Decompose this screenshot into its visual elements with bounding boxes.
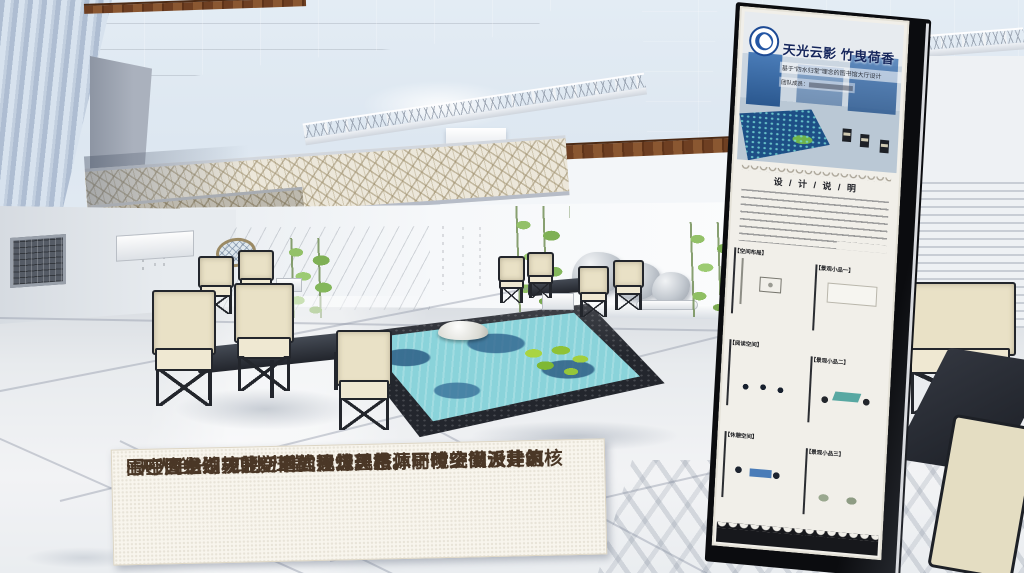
photo-chair bbox=[842, 128, 852, 142]
poster-panel-grid: 【空间布局】 【景观小品一】 【阅读空间】 【景观小品二】 【休憩空间】 【景观… bbox=[720, 246, 890, 531]
panel-label: 【景观小品一】 bbox=[815, 263, 854, 274]
panel-image-rest-space bbox=[721, 431, 726, 497]
panel-image-landscape-3 bbox=[802, 448, 807, 514]
chair-legs bbox=[529, 283, 553, 298]
chair-back bbox=[152, 290, 216, 355]
photo-chair bbox=[880, 140, 890, 154]
chair bbox=[613, 260, 644, 310]
panel-label: 【阅读空间】 bbox=[729, 338, 762, 349]
chair bbox=[578, 266, 609, 317]
chair-back bbox=[336, 330, 392, 386]
poster-panel: 【空间布局】 bbox=[734, 246, 808, 252]
vent-grille bbox=[10, 234, 66, 288]
panel-image-landscape-2 bbox=[807, 356, 812, 422]
chair bbox=[152, 290, 216, 406]
description-caption-card: 图书馆天井空间的设计理念源于传统徽派建筑 “天人合一，四水归堂”思想。整体环境空… bbox=[111, 438, 608, 565]
poster-panel: 【景观小品一】 bbox=[816, 263, 890, 269]
chair-back bbox=[238, 250, 274, 281]
panel-image-landscape-1 bbox=[812, 264, 817, 330]
chair-legs bbox=[615, 294, 642, 310]
panel-label: 【空间布局】 bbox=[734, 246, 767, 257]
photo-pool bbox=[737, 103, 832, 167]
chair-seat bbox=[339, 380, 389, 400]
panel-label: 【景观小品二】 bbox=[810, 355, 849, 366]
team-names-blur bbox=[808, 82, 852, 91]
chair-legs bbox=[339, 398, 388, 430]
chair-back bbox=[613, 260, 644, 288]
chair-back bbox=[904, 282, 1016, 356]
chair bbox=[498, 256, 525, 303]
caption-line: 心空间组织功能，增强视觉美感。 bbox=[126, 451, 412, 483]
chair bbox=[234, 283, 294, 391]
chair-legs bbox=[500, 288, 524, 303]
poster-panel: 【景观小品二】 bbox=[811, 355, 885, 361]
poster-panel: 【阅读空间】 bbox=[730, 338, 804, 344]
chair-back bbox=[234, 283, 294, 343]
wall-calligraphy-2 bbox=[430, 226, 490, 298]
chair-seat bbox=[155, 348, 213, 371]
3d-courtyard-viewport[interactable]: 天光云影 竹曳荷香 基于“四水归堂”理念的图书馆大厅设计 团队成员： 设 / 计… bbox=[0, 0, 1024, 573]
chair-back bbox=[578, 266, 609, 295]
chair-legs bbox=[238, 356, 291, 391]
pool-sculpture bbox=[438, 321, 488, 340]
chair-legs bbox=[156, 369, 212, 406]
chair-legs bbox=[580, 301, 607, 317]
chair bbox=[336, 330, 392, 430]
planter-bench bbox=[116, 230, 194, 261]
design-notes-paragraph bbox=[739, 189, 889, 254]
chair-seat bbox=[237, 337, 291, 359]
panel-label: 【景观小品三】 bbox=[806, 447, 845, 458]
panel-label: 【休憩空间】 bbox=[724, 430, 757, 441]
design-poster-board[interactable]: 天光云影 竹曳荷香 基于“四水归堂”理念的图书馆大厅设计 团队成员： 设 / 计… bbox=[712, 6, 910, 560]
poster-hero-photo: 天光云影 竹曳荷香 基于“四水归堂”理念的图书馆大厅设计 团队成员： bbox=[737, 11, 904, 173]
panel-image-reading-space bbox=[726, 339, 731, 405]
poster-panel: 【景观小品三】 bbox=[806, 447, 880, 453]
water-plants bbox=[518, 342, 596, 380]
team-label: 团队成员： bbox=[781, 80, 809, 88]
poster-panel: 【休憩空间】 bbox=[725, 430, 799, 436]
chair-back bbox=[527, 252, 554, 278]
chair-back bbox=[498, 256, 525, 282]
panel-image-floorplan bbox=[731, 247, 736, 313]
chair-back bbox=[198, 256, 234, 288]
photo-chair bbox=[860, 134, 870, 148]
photo-glass-panel bbox=[746, 52, 783, 107]
chair bbox=[527, 252, 554, 298]
